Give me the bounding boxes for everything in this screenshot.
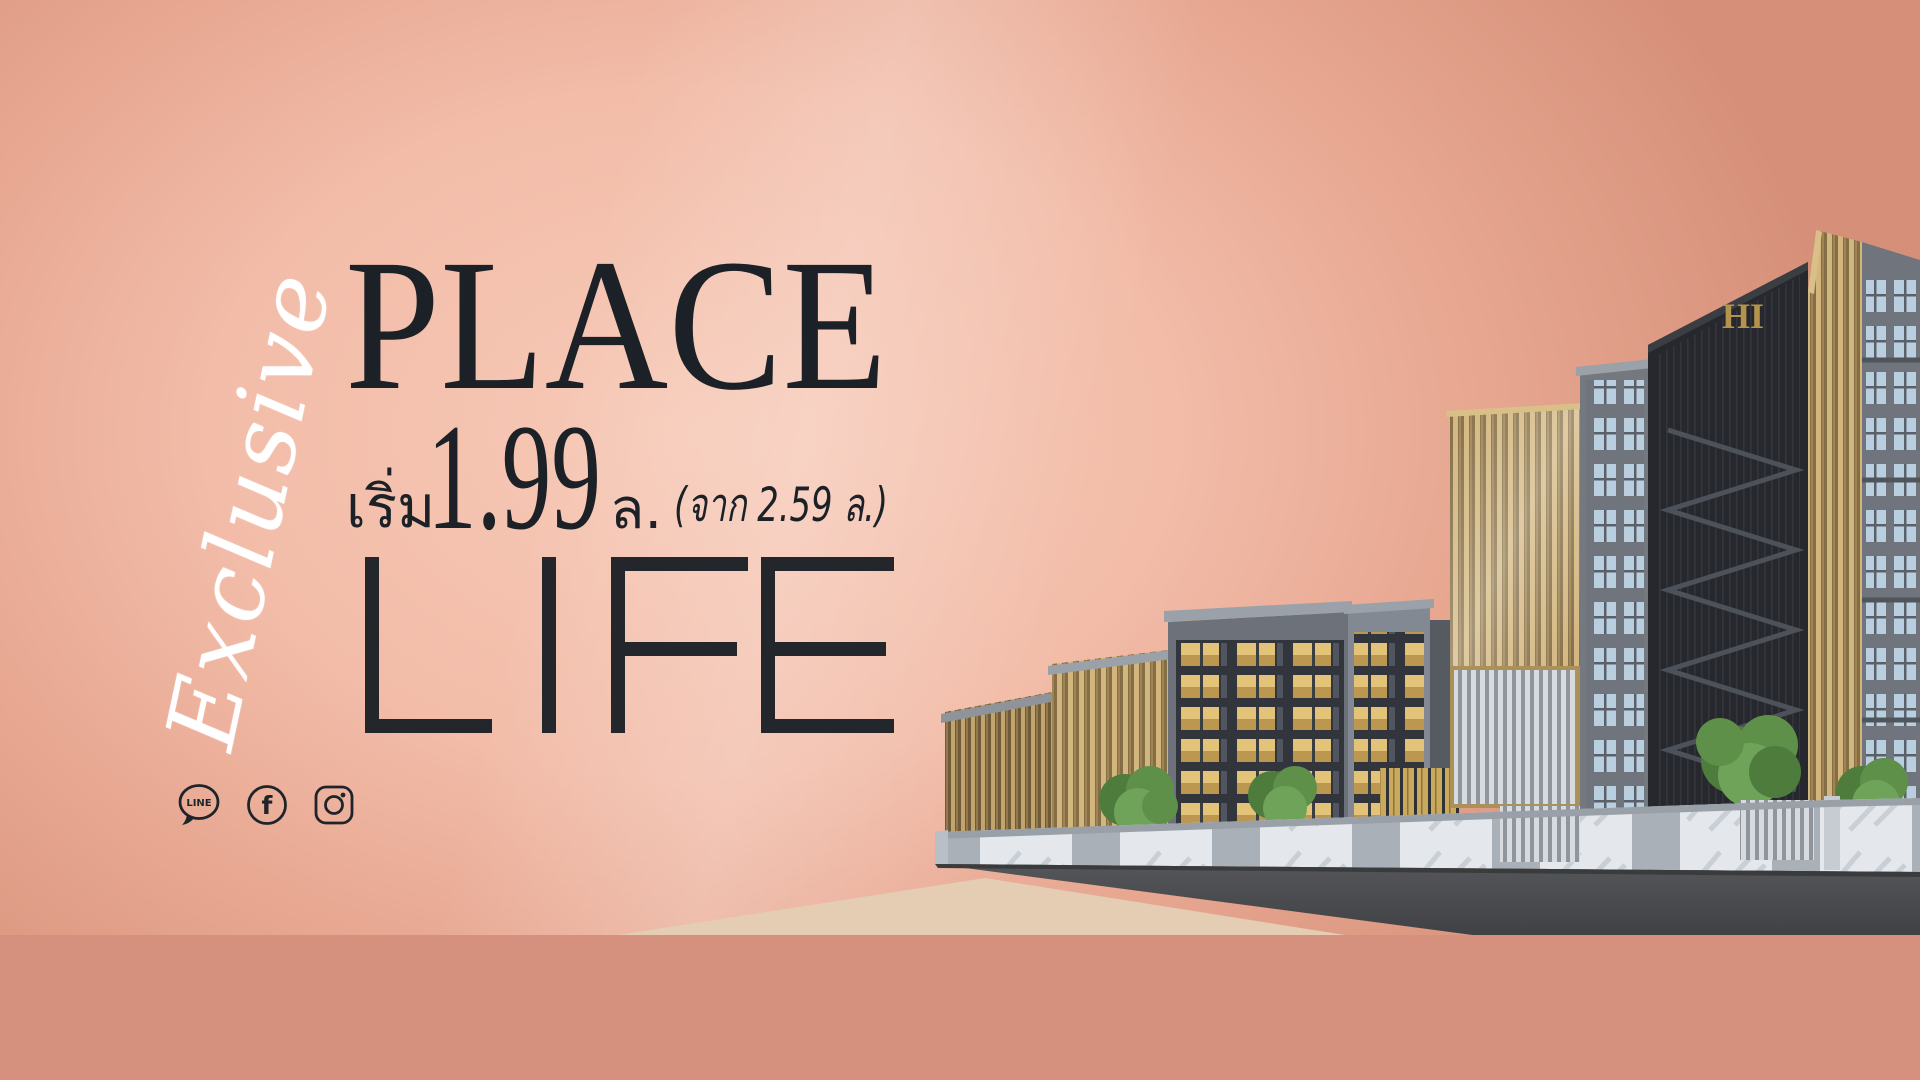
line-button[interactable]: LINE — [176, 782, 222, 831]
line-icon: LINE — [176, 782, 222, 828]
banner-root: { "hero": { "script_word": "Exclusive", … — [0, 0, 1920, 1080]
bottom-color-band — [0, 935, 1920, 1080]
facebook-button[interactable]: f — [246, 784, 288, 829]
gold-feature-panel — [1446, 403, 1584, 806]
facebook-icon: f — [246, 784, 288, 826]
instagram-icon — [312, 783, 356, 827]
facebook-icon-letter: f — [262, 791, 274, 820]
building-logo: HI — [1722, 296, 1764, 336]
building-block-windows — [1576, 359, 1652, 866]
social-icons-row: LINE f — [176, 782, 356, 831]
entrance-lobby — [1380, 768, 1460, 816]
price-note: (จาก 2.59 ล.) — [674, 478, 888, 533]
headline-lockup: PLACE เริ่ม 1.99 ล. (จาก 2.59 ล.) LIFE — [140, 190, 960, 850]
headline-life: LIFE — [363, 530, 894, 765]
instagram-button[interactable] — [312, 783, 356, 830]
line-icon-label: LINE — [186, 798, 211, 809]
